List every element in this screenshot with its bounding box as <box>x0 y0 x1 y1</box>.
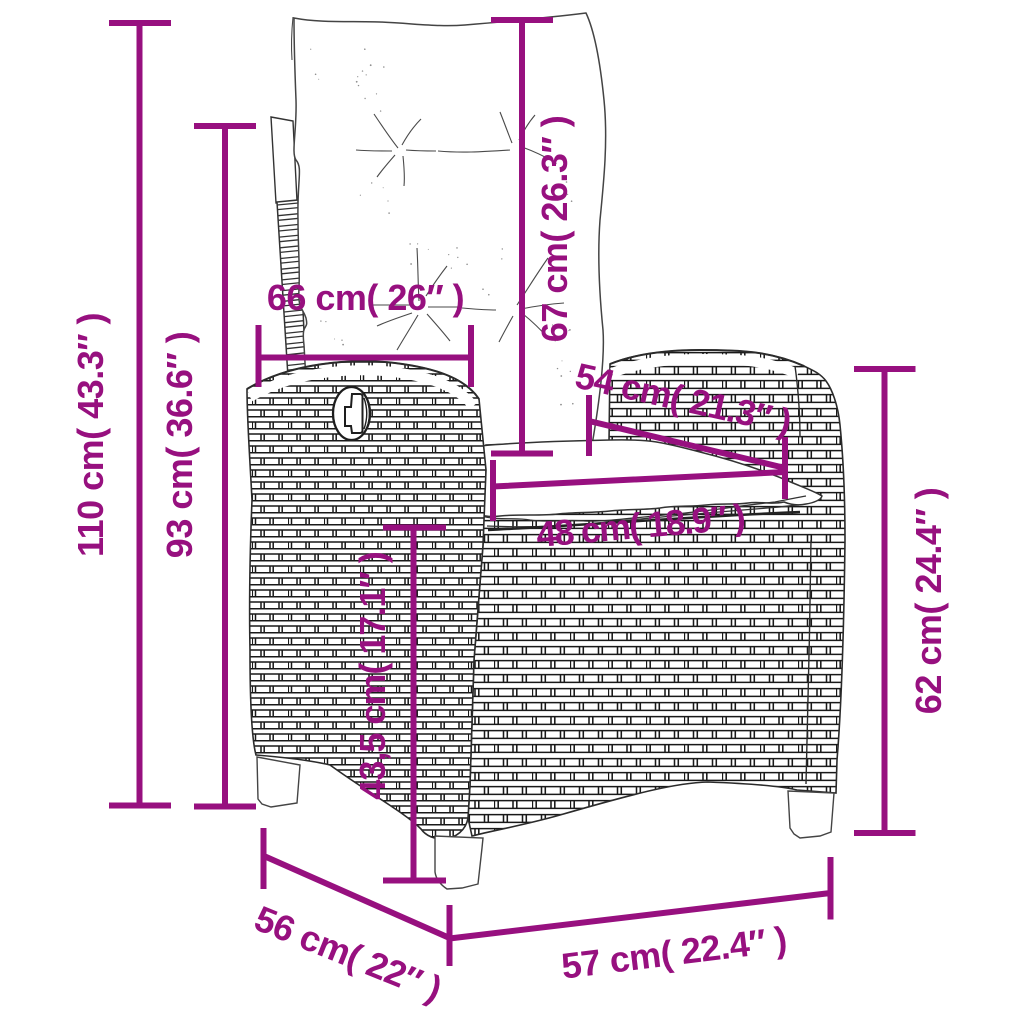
svg-text:93 cm( 36.6″ ): 93 cm( 36.6″ ) <box>159 332 200 558</box>
svg-text:67 cm( 26.3″ ): 67 cm( 26.3″ ) <box>534 116 575 342</box>
svg-text:110 cm( 43.3″ ): 110 cm( 43.3″ ) <box>70 313 111 557</box>
svg-text:43,5 cm( 17.1″ ): 43,5 cm( 17.1″ ) <box>352 552 393 799</box>
svg-text:66 cm( 26″ ): 66 cm( 26″ ) <box>267 277 464 318</box>
svg-text:62 cm( 24.4″ ): 62 cm( 24.4″ ) <box>908 488 949 714</box>
